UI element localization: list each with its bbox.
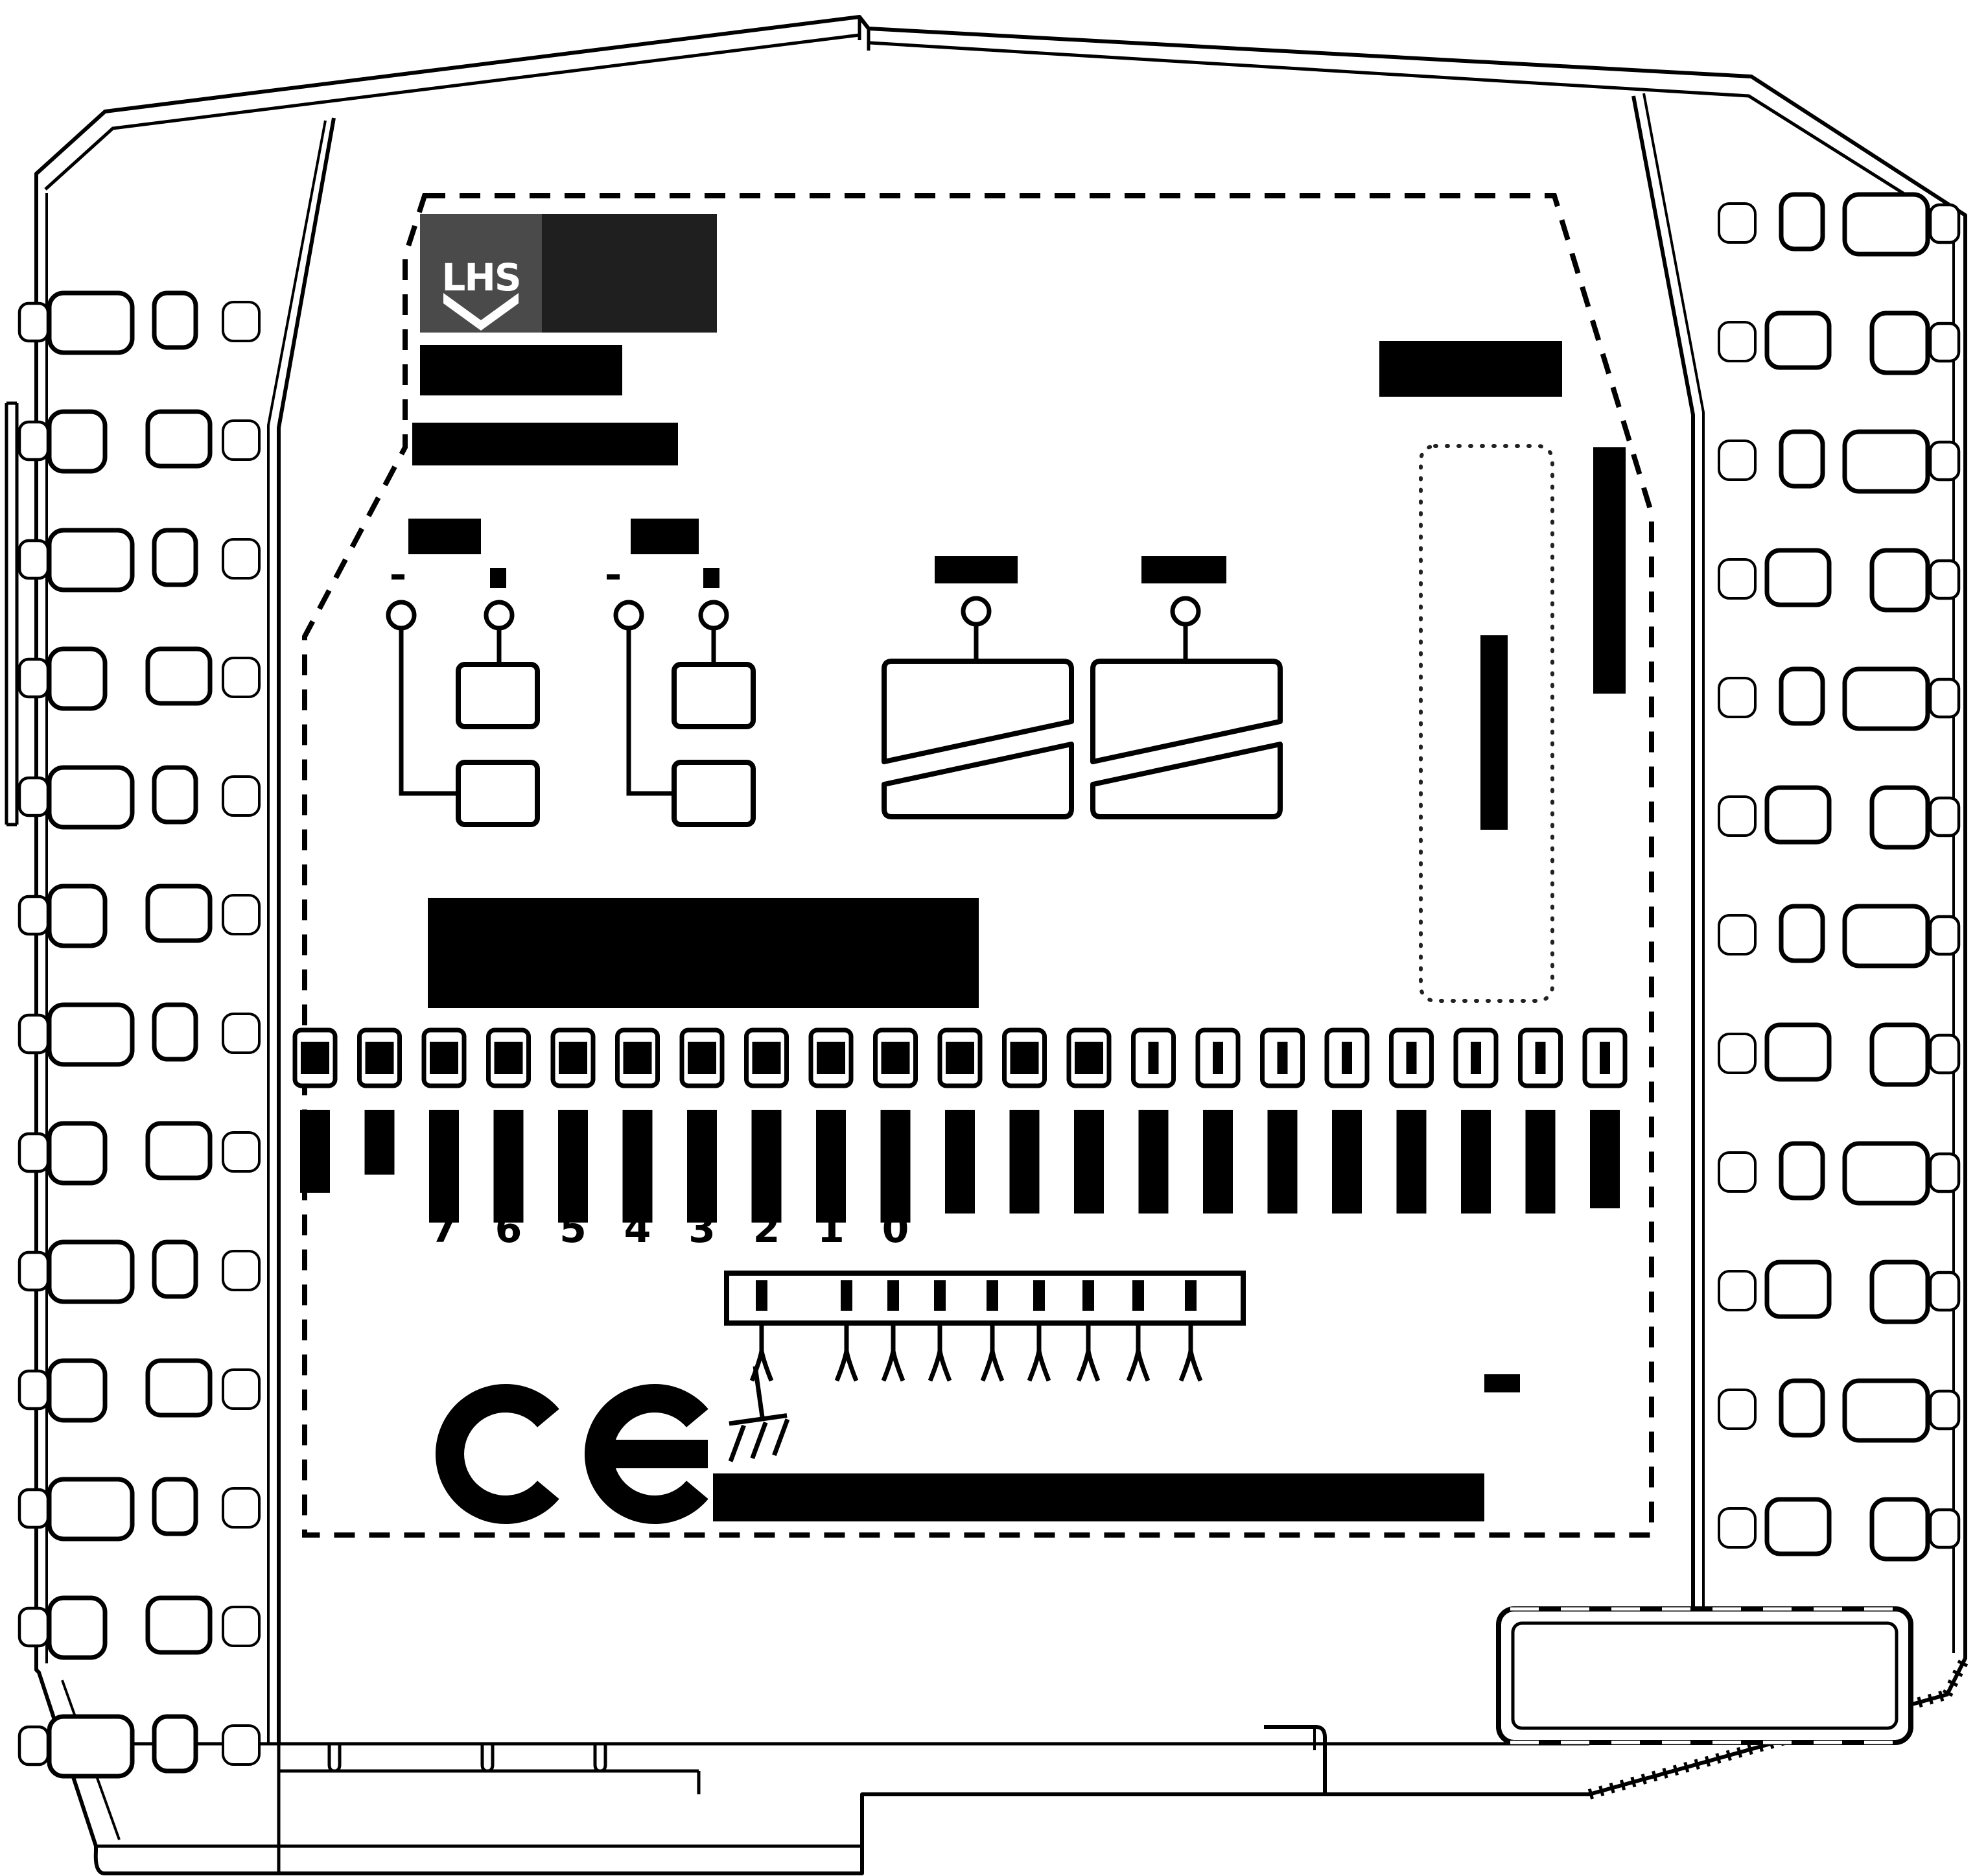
vent-slot xyxy=(154,1005,196,1059)
redacted-switch-area-bar xyxy=(1480,635,1508,830)
terminal-contact xyxy=(559,1042,587,1074)
redacted-terminal-number xyxy=(429,1110,459,1223)
redacted-terminal-number xyxy=(1461,1110,1491,1214)
vent-slot xyxy=(49,293,132,353)
redacted-output-2-label xyxy=(1141,556,1226,583)
connector-pin-mark xyxy=(887,1280,899,1311)
vent-slot xyxy=(1872,1499,1928,1559)
redacted-terminal-number xyxy=(752,1110,782,1223)
connector-strip-body xyxy=(727,1273,1243,1323)
vent-slot xyxy=(1845,432,1928,491)
redacted-terminal-number xyxy=(494,1110,524,1223)
vent-slot xyxy=(19,422,48,460)
redacted-terminal-number xyxy=(881,1110,911,1223)
redacted-terminal-number xyxy=(1590,1110,1620,1208)
vent-slot xyxy=(154,1479,196,1534)
vent-slot xyxy=(1719,1153,1755,1191)
vent-slot xyxy=(1872,1262,1928,1322)
terminal-contact xyxy=(1600,1042,1610,1074)
redacted-input-2-terminal-tag xyxy=(703,568,719,588)
connector-pin-mark xyxy=(1033,1280,1045,1311)
terminal-contact xyxy=(1075,1042,1103,1074)
vent-slot xyxy=(1930,1510,1959,1547)
vent-slot xyxy=(19,1252,48,1290)
vent-slot xyxy=(19,1727,48,1765)
redacted-small-mark xyxy=(1484,1374,1520,1392)
vent-slot xyxy=(49,886,105,946)
vent-slot xyxy=(1767,550,1829,605)
vent-slot xyxy=(1719,797,1755,836)
vent-slot xyxy=(1781,1143,1823,1198)
vent-slot xyxy=(49,1005,132,1064)
output-1-terminal xyxy=(963,598,989,624)
vent-slot xyxy=(1719,1271,1755,1310)
vent-slot xyxy=(49,1123,105,1183)
redacted-terminal-number xyxy=(623,1110,653,1223)
vent-slot xyxy=(223,658,259,697)
redacted-input-1-minus xyxy=(391,574,404,580)
vent-slot xyxy=(1767,1025,1829,1079)
vent-slot xyxy=(19,303,48,341)
vent-slot xyxy=(1719,678,1755,717)
terminal-contact xyxy=(1407,1042,1417,1074)
redacted-terminal-number xyxy=(1203,1110,1233,1214)
vent-slot xyxy=(1872,313,1928,373)
vent-slot xyxy=(1767,1499,1829,1554)
vent-slot xyxy=(1767,788,1829,842)
vent-slot xyxy=(1719,1508,1755,1547)
connector-pin-mark xyxy=(756,1280,767,1311)
redacted-terminal-number xyxy=(1139,1110,1169,1214)
vent-slot xyxy=(1930,323,1959,361)
vent-slot xyxy=(19,1608,48,1646)
redacted-terminal-number xyxy=(687,1110,717,1223)
vent-slot xyxy=(1845,194,1928,254)
redacted-terminal-number xyxy=(1526,1110,1556,1214)
marking-plate xyxy=(1499,1609,1911,1742)
vent-slot xyxy=(1872,1025,1928,1085)
redacted-input-2-label xyxy=(631,519,699,554)
vent-slot xyxy=(154,1242,196,1296)
redacted-order-code xyxy=(1379,341,1562,397)
din-rail-edge xyxy=(6,403,17,825)
vent-slot xyxy=(148,412,210,466)
vent-slot xyxy=(1781,1381,1823,1435)
vent-slot xyxy=(148,1123,210,1178)
redacted-output-1-label xyxy=(935,556,1018,583)
redacted-terminal-number xyxy=(1010,1110,1040,1214)
input-2-lower-box xyxy=(674,762,753,825)
vent-slot xyxy=(148,1598,210,1652)
input-1-upper-box xyxy=(458,664,537,727)
output-2-terminal xyxy=(1173,598,1198,624)
vent-slot xyxy=(49,1598,105,1658)
vent-slot xyxy=(223,421,259,460)
vent-slot xyxy=(1845,906,1928,966)
terminal-contact xyxy=(1011,1042,1039,1074)
vent-slot xyxy=(1872,788,1928,847)
connector-pin-mark xyxy=(1082,1280,1094,1311)
vent-slot xyxy=(1930,1272,1959,1310)
vent-slot xyxy=(1767,1262,1829,1317)
vent-slot xyxy=(49,768,132,827)
vent-slot xyxy=(49,412,105,471)
vent-slot xyxy=(223,1370,259,1409)
vent-slot xyxy=(49,1479,132,1539)
vent-slot xyxy=(223,1251,259,1290)
vent-slot xyxy=(1930,442,1959,480)
redacted-terminal-number xyxy=(1397,1110,1427,1214)
logo-text: LHS xyxy=(441,255,520,299)
terminal-contact xyxy=(753,1042,781,1074)
marking-plate-outer xyxy=(1499,1609,1911,1742)
vent-slot xyxy=(1930,1035,1959,1073)
redacted-input-1-terminal-tag xyxy=(490,568,506,588)
redacted-terminal-number xyxy=(1332,1110,1362,1214)
redacted-approvals-line xyxy=(713,1473,1484,1521)
din-module-svg: LHS xyxy=(0,0,1975,1876)
input-1-lower-box xyxy=(458,762,537,825)
vent-slot xyxy=(1845,1381,1928,1440)
vent-slot xyxy=(1845,669,1928,729)
input-2-terminal-a xyxy=(616,602,642,628)
input-1-terminal-a xyxy=(388,602,414,628)
terminal-contact xyxy=(366,1042,394,1074)
terminal-contact xyxy=(1471,1042,1481,1074)
terminal-contact xyxy=(301,1042,329,1074)
vent-slot xyxy=(148,886,210,941)
vent-slot xyxy=(1781,669,1823,723)
vent-slot xyxy=(1719,1390,1755,1429)
vent-slot xyxy=(148,1361,210,1415)
connector-pin-mark xyxy=(1132,1280,1144,1311)
terminal-contact xyxy=(1278,1042,1288,1074)
terminal-contact xyxy=(1213,1042,1223,1074)
redacted-terminal-number xyxy=(945,1110,975,1214)
redacted-input-2-minus xyxy=(607,574,620,580)
vent-slot xyxy=(1930,679,1959,717)
vent-slot xyxy=(223,1132,259,1171)
terminal-contact xyxy=(1536,1042,1546,1074)
brand-logo: LHS xyxy=(420,214,717,333)
vent-slot xyxy=(1719,204,1755,242)
vent-slot xyxy=(19,541,48,578)
terminal-contact xyxy=(946,1042,974,1074)
vent-slot xyxy=(19,1371,48,1409)
terminal-contact xyxy=(1342,1042,1352,1074)
vent-slot xyxy=(1930,561,1959,598)
vent-slot xyxy=(223,1488,259,1527)
redacted-terminal-number xyxy=(365,1110,395,1175)
vent-slot xyxy=(154,293,196,347)
terminal-contact xyxy=(495,1042,523,1074)
connector-pin-mark xyxy=(1185,1280,1197,1311)
terminal-contact xyxy=(624,1042,652,1074)
redacted-side-label-bar xyxy=(1593,447,1626,694)
redacted-spec-block xyxy=(428,898,979,1008)
vent-slot xyxy=(1930,917,1959,954)
vent-slot xyxy=(49,530,132,590)
vent-slot xyxy=(49,1717,132,1776)
vent-slot xyxy=(1719,559,1755,598)
redacted-input-1-label xyxy=(408,519,481,554)
vent-slot xyxy=(19,778,48,815)
redacted-terminal-number xyxy=(1074,1110,1104,1214)
vent-slot xyxy=(223,1726,259,1765)
module-drawing: LHS xyxy=(0,0,1975,1876)
vent-slot xyxy=(148,649,210,703)
housing-outline xyxy=(36,17,1965,1873)
redacted-product-title-line-2 xyxy=(412,423,678,465)
vent-slot xyxy=(1781,194,1823,249)
input-2-terminal-b xyxy=(701,602,727,628)
vent-slot xyxy=(223,1014,259,1053)
terminal-contact xyxy=(817,1042,845,1074)
vent-slot xyxy=(49,649,105,709)
vent-slot xyxy=(19,1134,48,1171)
vent-slot xyxy=(1719,441,1755,480)
redacted-terminal-number xyxy=(816,1110,846,1223)
vent-slot xyxy=(1930,205,1959,242)
vent-slot xyxy=(19,659,48,697)
redacted-product-title-line-1 xyxy=(420,345,622,395)
redacted-terminal-number xyxy=(558,1110,588,1223)
input-1-terminal-b xyxy=(486,602,512,628)
vent-slot xyxy=(154,768,196,822)
redacted-terminal-number xyxy=(1268,1110,1298,1214)
terminal-contact xyxy=(688,1042,716,1074)
housing xyxy=(6,17,1965,1873)
input-2-upper-box xyxy=(674,664,753,727)
redacted-terminal-number xyxy=(300,1110,330,1193)
vent-slot xyxy=(49,1361,105,1420)
vent-slot xyxy=(223,895,259,934)
terminal-contact xyxy=(430,1042,458,1074)
vent-slot xyxy=(1719,915,1755,954)
terminal-row xyxy=(295,1030,1625,1086)
vent-slot xyxy=(1872,550,1928,610)
logo-wordmark-tile xyxy=(542,214,717,333)
connector-pin-mark xyxy=(934,1280,946,1311)
ce-letter-e-bar xyxy=(613,1440,708,1468)
vent-slot xyxy=(1781,906,1823,961)
vent-slot xyxy=(154,530,196,585)
vent-slot xyxy=(1781,432,1823,486)
vent-slot xyxy=(223,302,259,341)
vent-slot xyxy=(154,1717,196,1771)
vent-slot xyxy=(1719,1034,1755,1073)
vent-slot xyxy=(19,1490,48,1527)
vent-slot xyxy=(1767,313,1829,368)
vent-slot xyxy=(223,539,259,578)
vent-slot xyxy=(1930,798,1959,836)
terminal-contact xyxy=(882,1042,910,1074)
connector-pin-mark xyxy=(987,1280,998,1311)
vent-slot xyxy=(1719,322,1755,361)
vent-slot xyxy=(19,897,48,934)
vent-slot xyxy=(1930,1391,1959,1429)
terminal-label-bars xyxy=(300,1110,1620,1223)
vent-slot xyxy=(49,1242,132,1302)
vent-slot xyxy=(223,777,259,815)
vent-slot xyxy=(1845,1143,1928,1203)
terminal-contact xyxy=(1149,1042,1159,1074)
vent-slot xyxy=(1930,1154,1959,1191)
connector-pin-mark xyxy=(841,1280,852,1311)
vent-slot xyxy=(19,1015,48,1053)
vent-slot xyxy=(223,1607,259,1646)
